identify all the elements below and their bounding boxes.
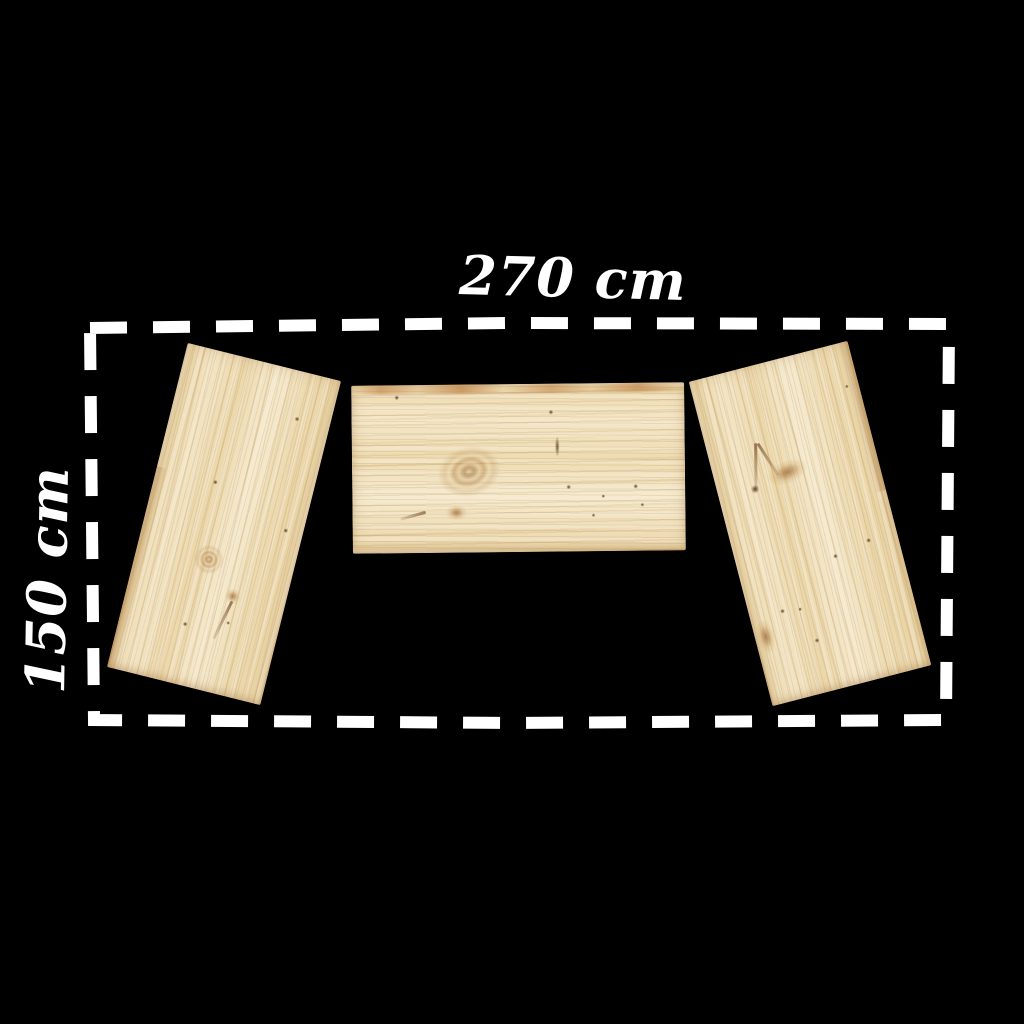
wood-dot bbox=[548, 410, 553, 415]
wood-dot bbox=[226, 621, 231, 626]
wood-knot bbox=[188, 539, 229, 580]
wood-dot bbox=[832, 553, 838, 559]
wood-dot bbox=[633, 484, 638, 489]
wood-grain-line bbox=[212, 601, 233, 640]
wood-dot bbox=[750, 484, 761, 495]
wood-slit bbox=[555, 436, 560, 458]
wood-grain-line bbox=[400, 511, 426, 520]
wood-dot bbox=[591, 513, 595, 517]
wood-dot bbox=[394, 395, 399, 400]
wood-knot bbox=[431, 439, 506, 504]
wood-dot bbox=[601, 494, 605, 498]
wood-dot bbox=[294, 416, 300, 422]
wood-dot bbox=[780, 608, 786, 614]
wood-dot bbox=[814, 637, 820, 643]
wood-dot bbox=[866, 537, 872, 543]
wood-dot bbox=[798, 607, 803, 612]
wood-grain-line bbox=[754, 443, 757, 489]
wood-knot bbox=[445, 505, 467, 521]
wood-knot bbox=[223, 587, 242, 606]
diagram-canvas: 270 cm 150 cm bbox=[0, 0, 1024, 1024]
wood-dot bbox=[283, 528, 289, 534]
wood-dot bbox=[640, 503, 644, 507]
height-dimension-label: 150 cm bbox=[13, 466, 81, 695]
wood-dot bbox=[212, 479, 218, 485]
width-dimension-label: 270 cm bbox=[458, 243, 687, 313]
wood-dot bbox=[182, 621, 188, 627]
wood-panel-center bbox=[351, 382, 686, 553]
wood-knot bbox=[763, 453, 811, 491]
wood-dot bbox=[566, 484, 571, 489]
